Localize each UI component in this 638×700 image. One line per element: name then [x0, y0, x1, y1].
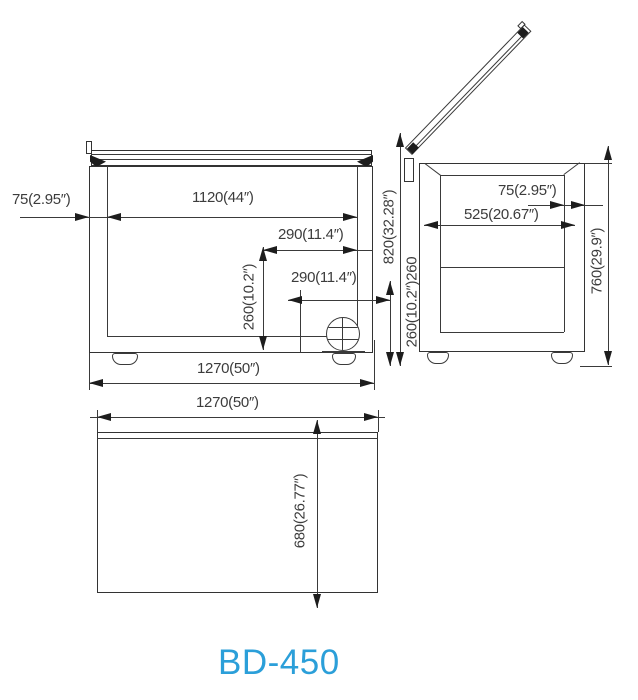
ext-line	[580, 366, 612, 367]
dim-front-wall: 75(2.95″)	[12, 191, 70, 208]
arrow	[313, 420, 321, 434]
dim-front-inner-height: 260(10.2″)	[241, 264, 258, 331]
side-liner-bottom	[440, 332, 564, 333]
dim-line	[400, 133, 401, 366]
hinge-bracket	[404, 158, 414, 182]
front-lid-tab	[86, 141, 92, 154]
dim-plan-width: 1270(50″)	[196, 394, 259, 411]
dim-front-inner-width: 1120(44″)	[192, 189, 254, 206]
dim-side-total-height: 760(29.9″)	[589, 228, 606, 295]
front-foot-right	[332, 353, 356, 365]
technical-drawing: 75(2.95″) 1120(44″) 290(11.4″) 290(11.4″…	[0, 0, 638, 700]
dim-side-inner-depth: 525(20.67″)	[464, 206, 539, 223]
front-liner-bottom	[107, 336, 357, 337]
front-foot-left	[112, 353, 138, 365]
front-lid-line	[91, 154, 372, 155]
ext-line	[374, 340, 375, 390]
dim-line	[263, 247, 264, 350]
arrow	[343, 213, 357, 221]
ext-line	[378, 410, 379, 432]
dim-front-total-width: 1270(50″)	[197, 360, 260, 377]
arrow	[364, 413, 378, 421]
arrow	[376, 296, 390, 304]
arrow	[386, 281, 394, 295]
arrow	[259, 336, 267, 350]
arrow	[259, 247, 267, 261]
arrow	[313, 594, 321, 608]
lid-inner-line	[411, 31, 527, 151]
arrow	[396, 352, 404, 366]
arrow	[107, 213, 121, 221]
plan-inner-top	[97, 438, 378, 439]
plan-outline	[97, 432, 378, 593]
model-title: BD-450	[218, 643, 340, 683]
side-foot-left	[427, 352, 449, 364]
dim-line	[288, 300, 390, 301]
arrow	[89, 379, 103, 387]
fan-line	[342, 318, 343, 351]
arrow	[561, 221, 575, 229]
dim-front-offset-lower: 290(11.4″)	[291, 269, 356, 286]
arrow	[396, 133, 404, 147]
front-liner-left	[107, 166, 108, 336]
dim-plan-depth: 680(26.77″)	[292, 474, 309, 549]
arrow	[604, 351, 612, 365]
arrow	[343, 246, 357, 254]
dim-line	[90, 417, 385, 418]
arrow	[571, 201, 585, 209]
dim-line	[89, 383, 374, 384]
arrow	[604, 146, 612, 160]
arrow	[288, 296, 302, 304]
dim-line	[424, 225, 575, 226]
fan-line	[327, 327, 360, 328]
side-foot-right	[551, 352, 573, 364]
open-lid	[405, 24, 532, 155]
arrow	[386, 352, 394, 366]
arrow	[550, 201, 564, 209]
front-liner-right	[357, 166, 358, 336]
dim-line	[317, 420, 318, 608]
dim-line	[20, 217, 357, 218]
dim-front-mid-height: 260(10.2″)260	[404, 257, 421, 348]
arrow	[424, 221, 438, 229]
front-lid-line	[91, 159, 372, 160]
dim-line	[608, 146, 609, 365]
arrow	[75, 213, 89, 221]
dim-front-offset-upper: 290(11.4″)	[278, 226, 343, 243]
side-liner-left	[440, 175, 441, 332]
side-liner-right	[564, 175, 565, 332]
side-step-line	[440, 267, 564, 268]
dim-front-total-height: 820(32.28″)	[381, 190, 398, 265]
arrow	[97, 413, 111, 421]
dim-line	[528, 205, 603, 206]
arrow	[360, 379, 374, 387]
front-lid	[91, 150, 372, 166]
dim-side-wall: 75(2.95″)	[498, 182, 556, 199]
fan-line	[327, 339, 360, 340]
compressor-fan-icon	[326, 317, 360, 351]
side-top-recess	[441, 175, 564, 176]
